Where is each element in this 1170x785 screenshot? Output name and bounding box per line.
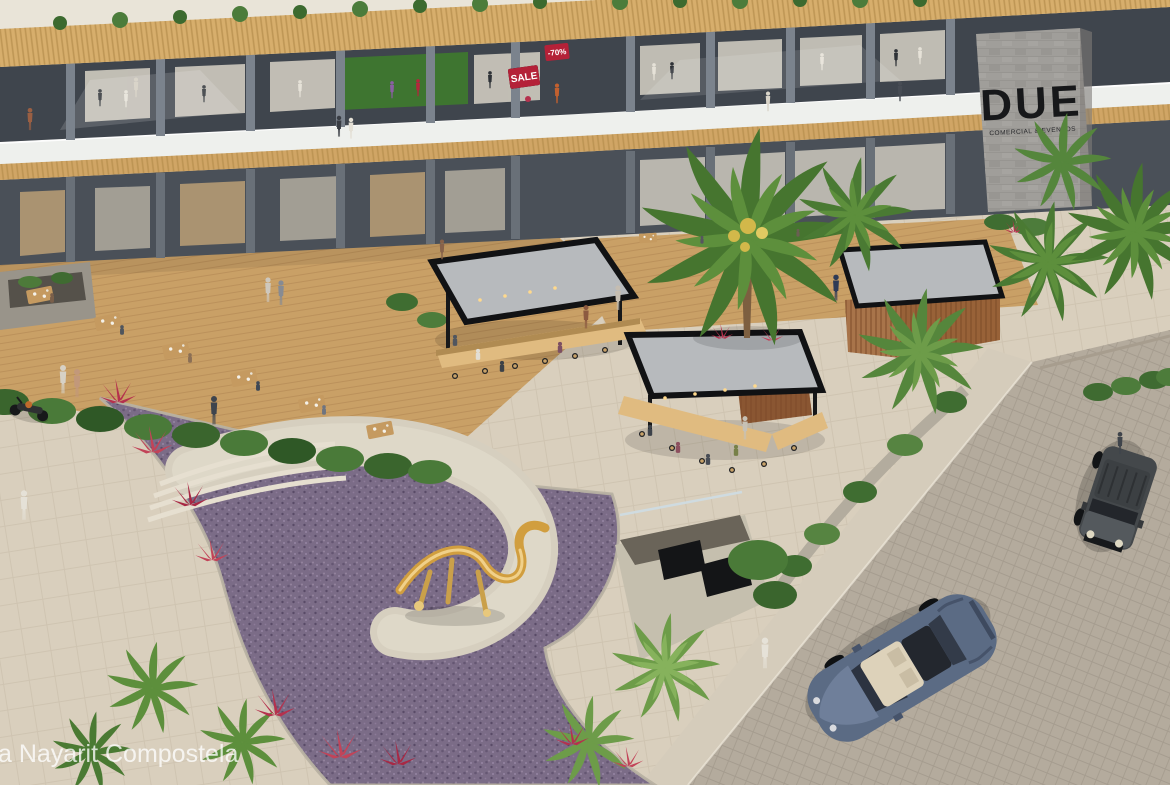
mall-building: SALE -70% DUE COMERCIAL & EVENTOS — [0, 0, 1170, 265]
rendering-canvas: SALE -70% DUE COMERCIAL & EVENTOS — [0, 0, 1170, 785]
watermark: a Nayarit Compostela — [0, 740, 238, 768]
green-wall-store — [340, 52, 468, 110]
red-shopping-bag — [525, 96, 531, 102]
due-logo: DUE — [979, 76, 1083, 130]
discount-sign: -70% — [544, 43, 570, 61]
sale-sign: SALE — [508, 65, 540, 89]
plaza-rendering: SALE -70% DUE COMERCIAL & EVENTOS — [0, 0, 1170, 785]
